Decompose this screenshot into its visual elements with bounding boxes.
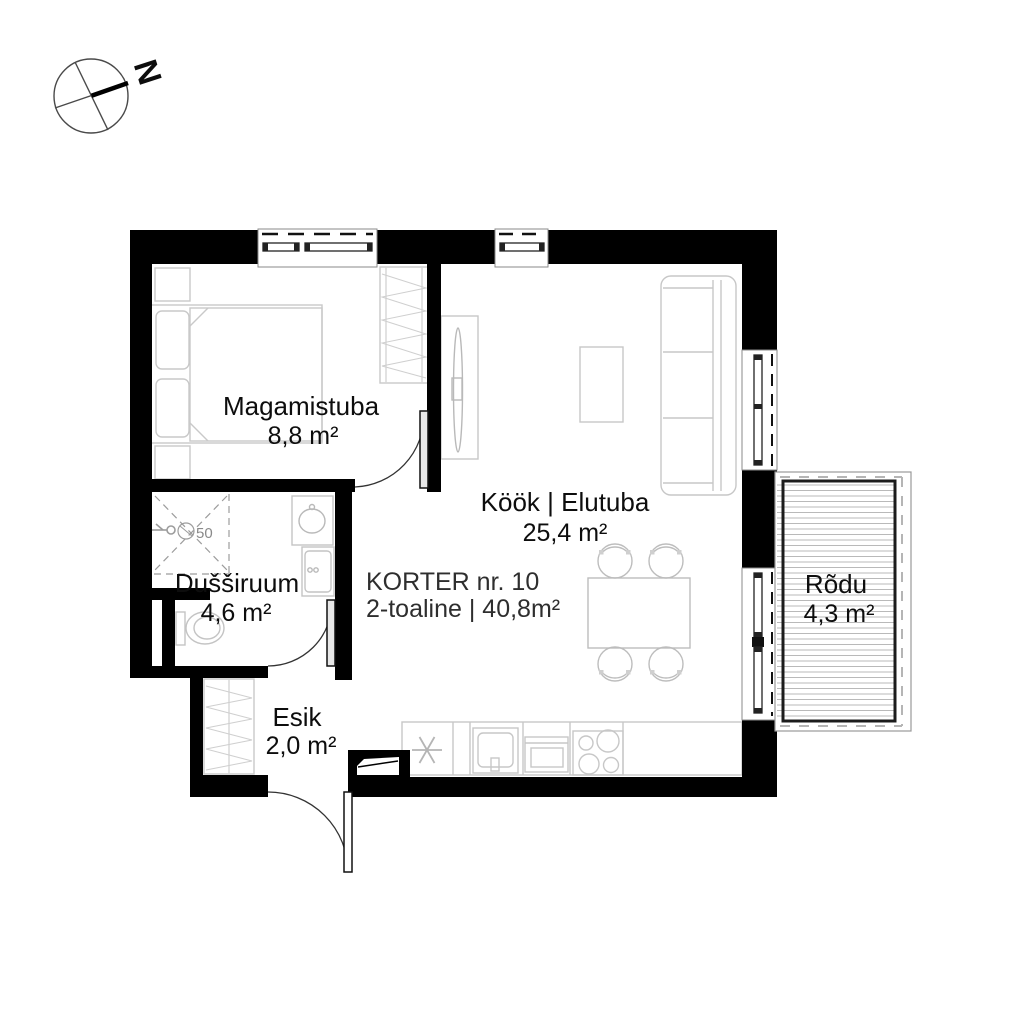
- room-label-magamistuba: Magamistuba: [223, 391, 380, 421]
- window-living-right: [742, 350, 777, 470]
- wall-bathroom-right: [335, 492, 352, 680]
- entry-wardrobe: [204, 679, 254, 774]
- dining-chair: [649, 647, 683, 681]
- pillow: [156, 311, 189, 369]
- dining-table: [588, 578, 690, 648]
- tv-bench: [441, 316, 478, 459]
- oven: [525, 737, 568, 772]
- room-label-dussiruum: Dušširuum: [175, 568, 299, 598]
- window-living-top: [495, 229, 548, 267]
- wall-exterior-top: [130, 230, 777, 264]
- door-leaf: [344, 792, 352, 872]
- door-leaf: [327, 600, 335, 666]
- vent-shaft-symbol: [357, 757, 399, 775]
- door-bathroom: [268, 600, 335, 666]
- apartment-number: KORTER nr. 10: [366, 568, 539, 596]
- blanket-fold: [190, 423, 208, 441]
- balcony-door-window: [742, 568, 777, 720]
- stove: [573, 730, 623, 775]
- wall-bedroom-bathroom: [152, 479, 355, 492]
- window-bedroom: [258, 229, 377, 267]
- wall-exterior-bottom: [348, 777, 777, 797]
- dining-set: [588, 544, 690, 681]
- room-area-rodu: 4,3 m²: [804, 600, 875, 628]
- room-label-esik: Esik: [272, 702, 322, 732]
- coffee-table: [580, 347, 623, 422]
- door-bedroom: [355, 411, 428, 488]
- tv: [454, 328, 463, 452]
- compass: N: [54, 55, 169, 133]
- kitchen-counter: [402, 722, 742, 775]
- room-area-dussiruum: 4,6 m²: [201, 599, 272, 627]
- fridge: [412, 737, 442, 763]
- washbasin: [292, 496, 333, 545]
- drain-size-label: 50: [196, 525, 213, 542]
- room-area-kook-elutuba: 25,4 m²: [523, 519, 608, 547]
- dining-chair: [598, 647, 632, 681]
- room-area-magamistuba: 8,8 m²: [268, 422, 339, 450]
- wardrobe-bedroom: [380, 267, 428, 383]
- dining-chair: [598, 544, 632, 578]
- entry-furniture: [204, 679, 254, 774]
- wall-exterior-left: [130, 230, 152, 678]
- washing-machine: [302, 547, 334, 596]
- room-label-rodu: Rõdu: [805, 569, 867, 599]
- nightstand: [155, 268, 190, 301]
- door-leaf: [420, 411, 428, 488]
- dining-chair: [649, 544, 683, 578]
- door-entrance: [268, 792, 352, 872]
- apartment-summary: 2-toaline | 40,8m²: [366, 595, 560, 623]
- room-area-esik: 2,0 m²: [266, 732, 337, 760]
- floor-plan-page: N: [0, 0, 1024, 1024]
- north-label: N: [127, 55, 170, 89]
- north-arrow-icon: [92, 83, 129, 96]
- shower-head-icon: [152, 524, 175, 534]
- kitchen-sink: [473, 728, 518, 773]
- wall-entry-bottom: [190, 775, 268, 797]
- floor-plan-drawing: N: [0, 0, 1024, 1024]
- floor-drain: 50: [178, 523, 213, 542]
- sofa: [661, 276, 736, 495]
- apartment-title: KORTER nr. 10 2-toaline | 40,8m²: [366, 568, 560, 623]
- wall-bathroom-niche-v: [162, 600, 175, 666]
- nightstand: [155, 446, 190, 479]
- snowflake-icon: [412, 737, 442, 763]
- wall-bedroom-living: [427, 264, 441, 492]
- window-handle: [752, 637, 764, 647]
- walls: [130, 230, 777, 797]
- shower: [154, 494, 229, 574]
- room-label-kook-elutuba: Köök | Elutuba: [481, 487, 650, 517]
- blanket-fold: [190, 308, 208, 326]
- pillow: [156, 379, 189, 437]
